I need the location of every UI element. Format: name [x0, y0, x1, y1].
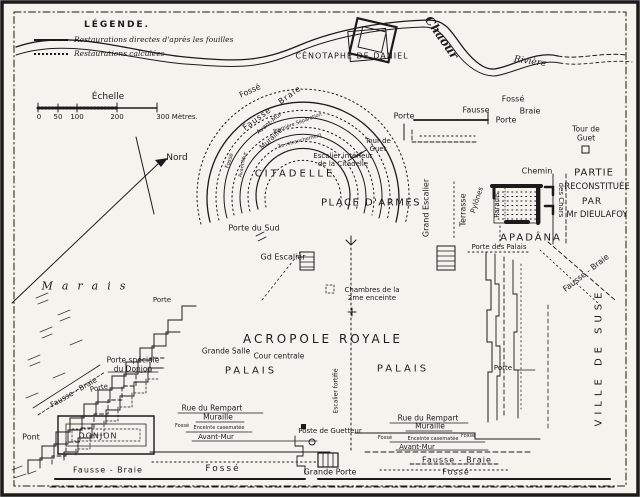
solid-line-sample — [34, 39, 68, 41]
scale-bar — [38, 103, 157, 112]
citadel-rings — [197, 89, 409, 224]
north-arrow — [12, 137, 168, 303]
north-walls — [404, 112, 589, 153]
legend: LÉGENDE. Restaurations directes d'après … — [34, 20, 200, 58]
apadana-plan — [454, 174, 615, 305]
susa-archaeological-map: Échelle050100200300 Mètres.NordCÉNOTAPHE… — [0, 0, 640, 497]
east-walls — [486, 252, 548, 430]
marsh-marks — [12, 293, 82, 478]
legend-title: LÉGENDE. — [34, 20, 200, 30]
dotted-line-sample — [34, 53, 68, 55]
southwest-ramparts — [28, 306, 196, 473]
map-border — [2, 2, 638, 495]
grand-staircase — [256, 232, 455, 270]
legend-item-label: Restaurations directes d'après les fouil… — [74, 35, 233, 44]
map-linework — [0, 0, 640, 497]
legend-item-label: Restaurations calculées — [74, 49, 165, 58]
south-east-walls — [355, 423, 540, 470]
legend-item-restorations-direct: Restaurations directes d'après les fouil… — [34, 35, 200, 44]
fortified-path — [262, 236, 356, 452]
legend-item-restorations-calculated: Restaurations calculées — [34, 49, 200, 58]
south-center-walls — [150, 413, 338, 474]
